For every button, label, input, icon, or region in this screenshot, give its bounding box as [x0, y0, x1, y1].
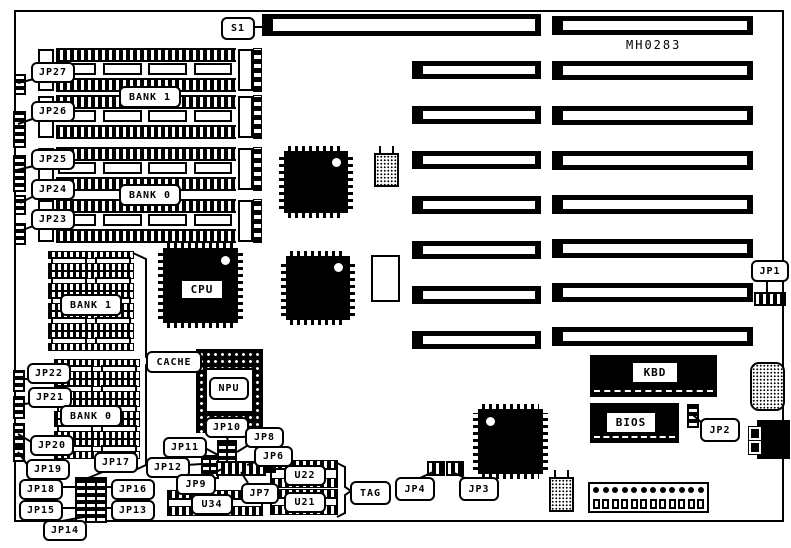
pin-fringe — [158, 252, 163, 319]
slot-left — [412, 106, 541, 124]
slot-right — [552, 327, 753, 346]
keyboard-connector — [757, 420, 790, 459]
jp22-label: JP22 — [27, 363, 71, 384]
cpu-label: CPU — [180, 279, 224, 300]
connector-tab — [749, 441, 761, 454]
jumper-jp4 — [427, 461, 445, 476]
slot-right — [552, 16, 753, 35]
npu-label: NPU — [209, 377, 249, 400]
jp14-label: JP14 — [43, 520, 87, 541]
simm-bank0-label: BANK 0 — [119, 184, 181, 206]
slot-left — [412, 331, 541, 349]
tag-label: TAG — [350, 481, 391, 505]
qfp-chip-1 — [284, 151, 348, 213]
s1-slot — [262, 14, 541, 36]
pin-fringe — [167, 323, 234, 328]
slot-left — [412, 241, 541, 259]
jumper-strip — [95, 477, 107, 523]
slot-right — [552, 239, 753, 258]
sram-bank1-label: BANK 1 — [60, 294, 122, 316]
jp11-label: JP11 — [163, 437, 207, 458]
jp26-label: JP26 — [31, 101, 75, 122]
connector-tab — [749, 427, 761, 440]
power-terminal-block — [588, 482, 709, 513]
jumper-jp20 — [13, 423, 25, 445]
jp15-label: JP15 — [19, 500, 63, 521]
jp24-label: JP24 — [31, 179, 75, 200]
jp18-label: JP18 — [19, 479, 63, 500]
slot-left — [412, 151, 541, 169]
jp7-label: JP7 — [241, 483, 279, 504]
jp9-label: JP9 — [176, 474, 216, 495]
slot-left — [412, 196, 541, 214]
u34-label: U34 — [191, 494, 233, 515]
slot-right — [552, 195, 753, 214]
pin1-dot — [221, 256, 230, 265]
empty-socket — [371, 255, 400, 302]
jp1-label: JP1 — [751, 260, 789, 282]
jumper-jp21 — [13, 396, 25, 419]
slot-right — [552, 283, 753, 302]
qfp-chip-2 — [286, 256, 350, 320]
jumper-jp27 — [14, 74, 26, 95]
pin-fringe — [167, 243, 234, 248]
jumper-jp22 — [13, 370, 25, 392]
pin-row — [56, 48, 236, 62]
jp6-label: JP6 — [254, 446, 293, 467]
sram-bank0-label: BANK 0 — [60, 405, 122, 427]
jp3-label: JP3 — [459, 477, 499, 501]
jp17-label: JP17 — [94, 452, 138, 473]
jp25-label: JP25 — [31, 149, 75, 170]
simm-bank1-label: BANK 1 — [119, 86, 181, 108]
cache-label: CACHE — [146, 351, 202, 373]
jp23-label: JP23 — [31, 209, 75, 230]
u21-label: U21 — [284, 492, 326, 513]
jp2-label: JP2 — [700, 418, 740, 442]
pin-row — [56, 125, 236, 139]
slot-right — [552, 106, 753, 125]
s1-label: S1 — [221, 17, 255, 40]
kbd-label: KBD — [631, 361, 679, 384]
jumper-jp25 — [13, 155, 26, 192]
jp19-label: JP19 — [26, 459, 70, 480]
jumper-jp2 — [687, 404, 699, 428]
pin-fringe — [238, 252, 243, 319]
crystal-oscillator-2 — [549, 477, 574, 512]
board-part-number: MH0283 — [626, 38, 681, 52]
din-footprint — [750, 362, 785, 411]
jp8-label: JP8 — [245, 427, 284, 448]
qfp-chip-3 — [478, 409, 543, 474]
jumper-jp1 — [754, 292, 786, 306]
jumper-jp24 — [14, 195, 26, 215]
pin-row — [56, 229, 236, 243]
jumper-jp3 — [446, 461, 464, 476]
jp20-label: JP20 — [30, 435, 74, 456]
u22-label: U22 — [284, 465, 326, 486]
crystal-oscillator — [374, 153, 399, 187]
jumper-jp23 — [14, 223, 26, 245]
jp10-label: JP10 — [205, 417, 249, 438]
bios-label: BIOS — [605, 411, 657, 434]
motherboard-diagram: MH0283 BANK 1 BANK 0 J — [0, 0, 791, 548]
jumper-jp19 — [13, 445, 25, 462]
slot-right — [552, 61, 753, 80]
slot-left — [412, 61, 541, 79]
jp4-label: JP4 — [395, 477, 435, 501]
slot-right — [552, 151, 753, 170]
jp27-label: JP27 — [31, 62, 75, 83]
jp13-label: JP13 — [111, 500, 155, 521]
slot-left — [412, 286, 541, 304]
pin-row — [56, 147, 236, 161]
jumper-jp26 — [13, 111, 26, 148]
jp16-label: JP16 — [111, 479, 155, 500]
